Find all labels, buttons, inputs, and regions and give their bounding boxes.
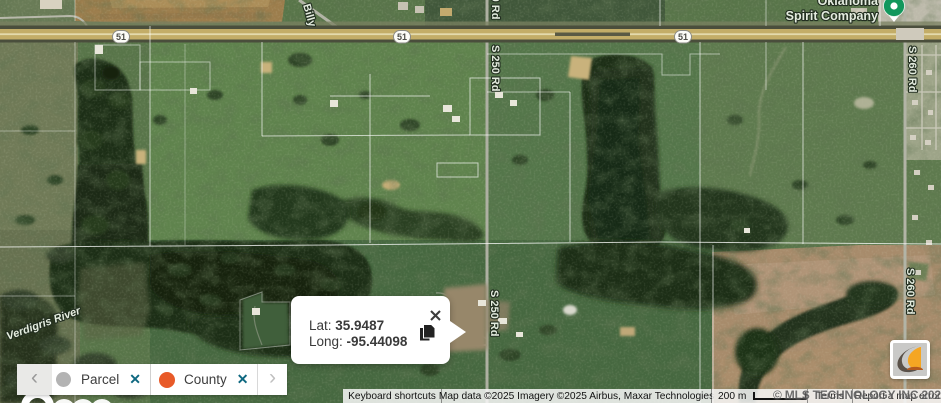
svg-text:51: 51 xyxy=(397,32,407,42)
svg-text:S 250 Rd: S 250 Rd xyxy=(488,290,500,336)
svg-text:51: 51 xyxy=(116,32,126,42)
svg-text:Oklahoma: Oklahoma xyxy=(818,0,879,8)
svg-text:Spirit Company: Spirit Company xyxy=(786,9,878,23)
svg-text:51: 51 xyxy=(678,32,688,42)
svg-text:S 260 Rd: S 260 Rd xyxy=(906,46,918,92)
svg-text:S 250 Rd: S 250 Rd xyxy=(489,45,501,91)
svg-text:S 260 Rd: S 260 Rd xyxy=(904,268,916,314)
svg-text:S 250 Rd: S 250 Rd xyxy=(489,0,501,19)
